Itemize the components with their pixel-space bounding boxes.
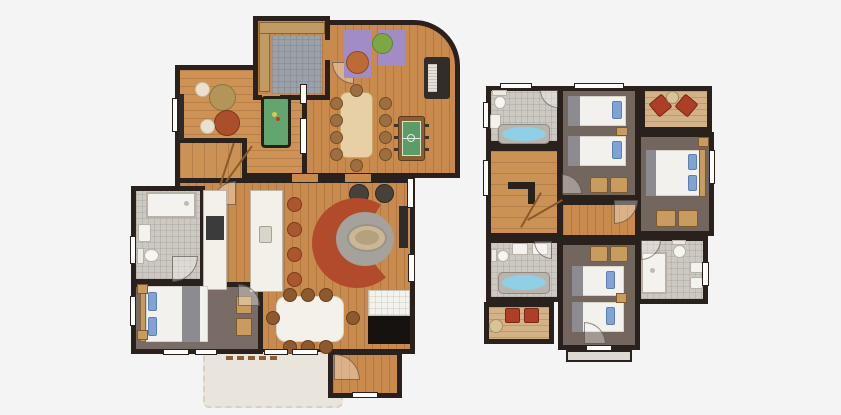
window: [500, 83, 532, 89]
door-gap: [586, 345, 612, 351]
bed-runner: [572, 266, 583, 296]
nightstand: [698, 137, 709, 147]
nightstand: [616, 293, 627, 303]
window: [574, 83, 624, 89]
bed-runner: [568, 136, 580, 166]
balcony-table: [666, 91, 679, 104]
window: [702, 262, 709, 286]
bed-pillow: [688, 175, 697, 191]
bed-pillow: [612, 141, 622, 159]
bed-pillow: [606, 271, 615, 289]
bed-runner: [646, 150, 656, 196]
upper-floor-plan: [0, 0, 841, 415]
bench-cushion: [656, 210, 676, 227]
entry-step-pad: [566, 350, 632, 362]
toilet-bowl: [494, 96, 506, 109]
sink: [512, 243, 528, 255]
bed-headboard: [699, 149, 706, 197]
bed-pillow: [612, 101, 622, 119]
balcony-table: [489, 319, 503, 333]
bed-pillow: [606, 307, 615, 325]
bench-cushion: [678, 210, 698, 227]
window: [483, 102, 489, 128]
bench-cushion: [590, 246, 608, 262]
balcony-chair: [524, 308, 539, 323]
floorplan-stage: [0, 0, 841, 415]
jacuzzi-water: [502, 275, 546, 290]
window: [483, 160, 489, 196]
toilet-bowl: [497, 250, 509, 262]
jacuzzi-water: [502, 127, 546, 141]
toilet-bowl: [673, 245, 686, 258]
nightstand: [616, 127, 628, 136]
bed-runner: [568, 96, 580, 126]
bed-pillow: [688, 154, 697, 170]
bed-runner: [572, 302, 583, 332]
bench-cushion: [610, 177, 628, 193]
bench-cushion: [590, 177, 608, 193]
staircase-uf: [486, 146, 562, 238]
bench-cushion: [610, 246, 628, 262]
shower-drain: [650, 268, 655, 273]
window: [709, 150, 715, 184]
balcony-chair: [505, 308, 520, 323]
